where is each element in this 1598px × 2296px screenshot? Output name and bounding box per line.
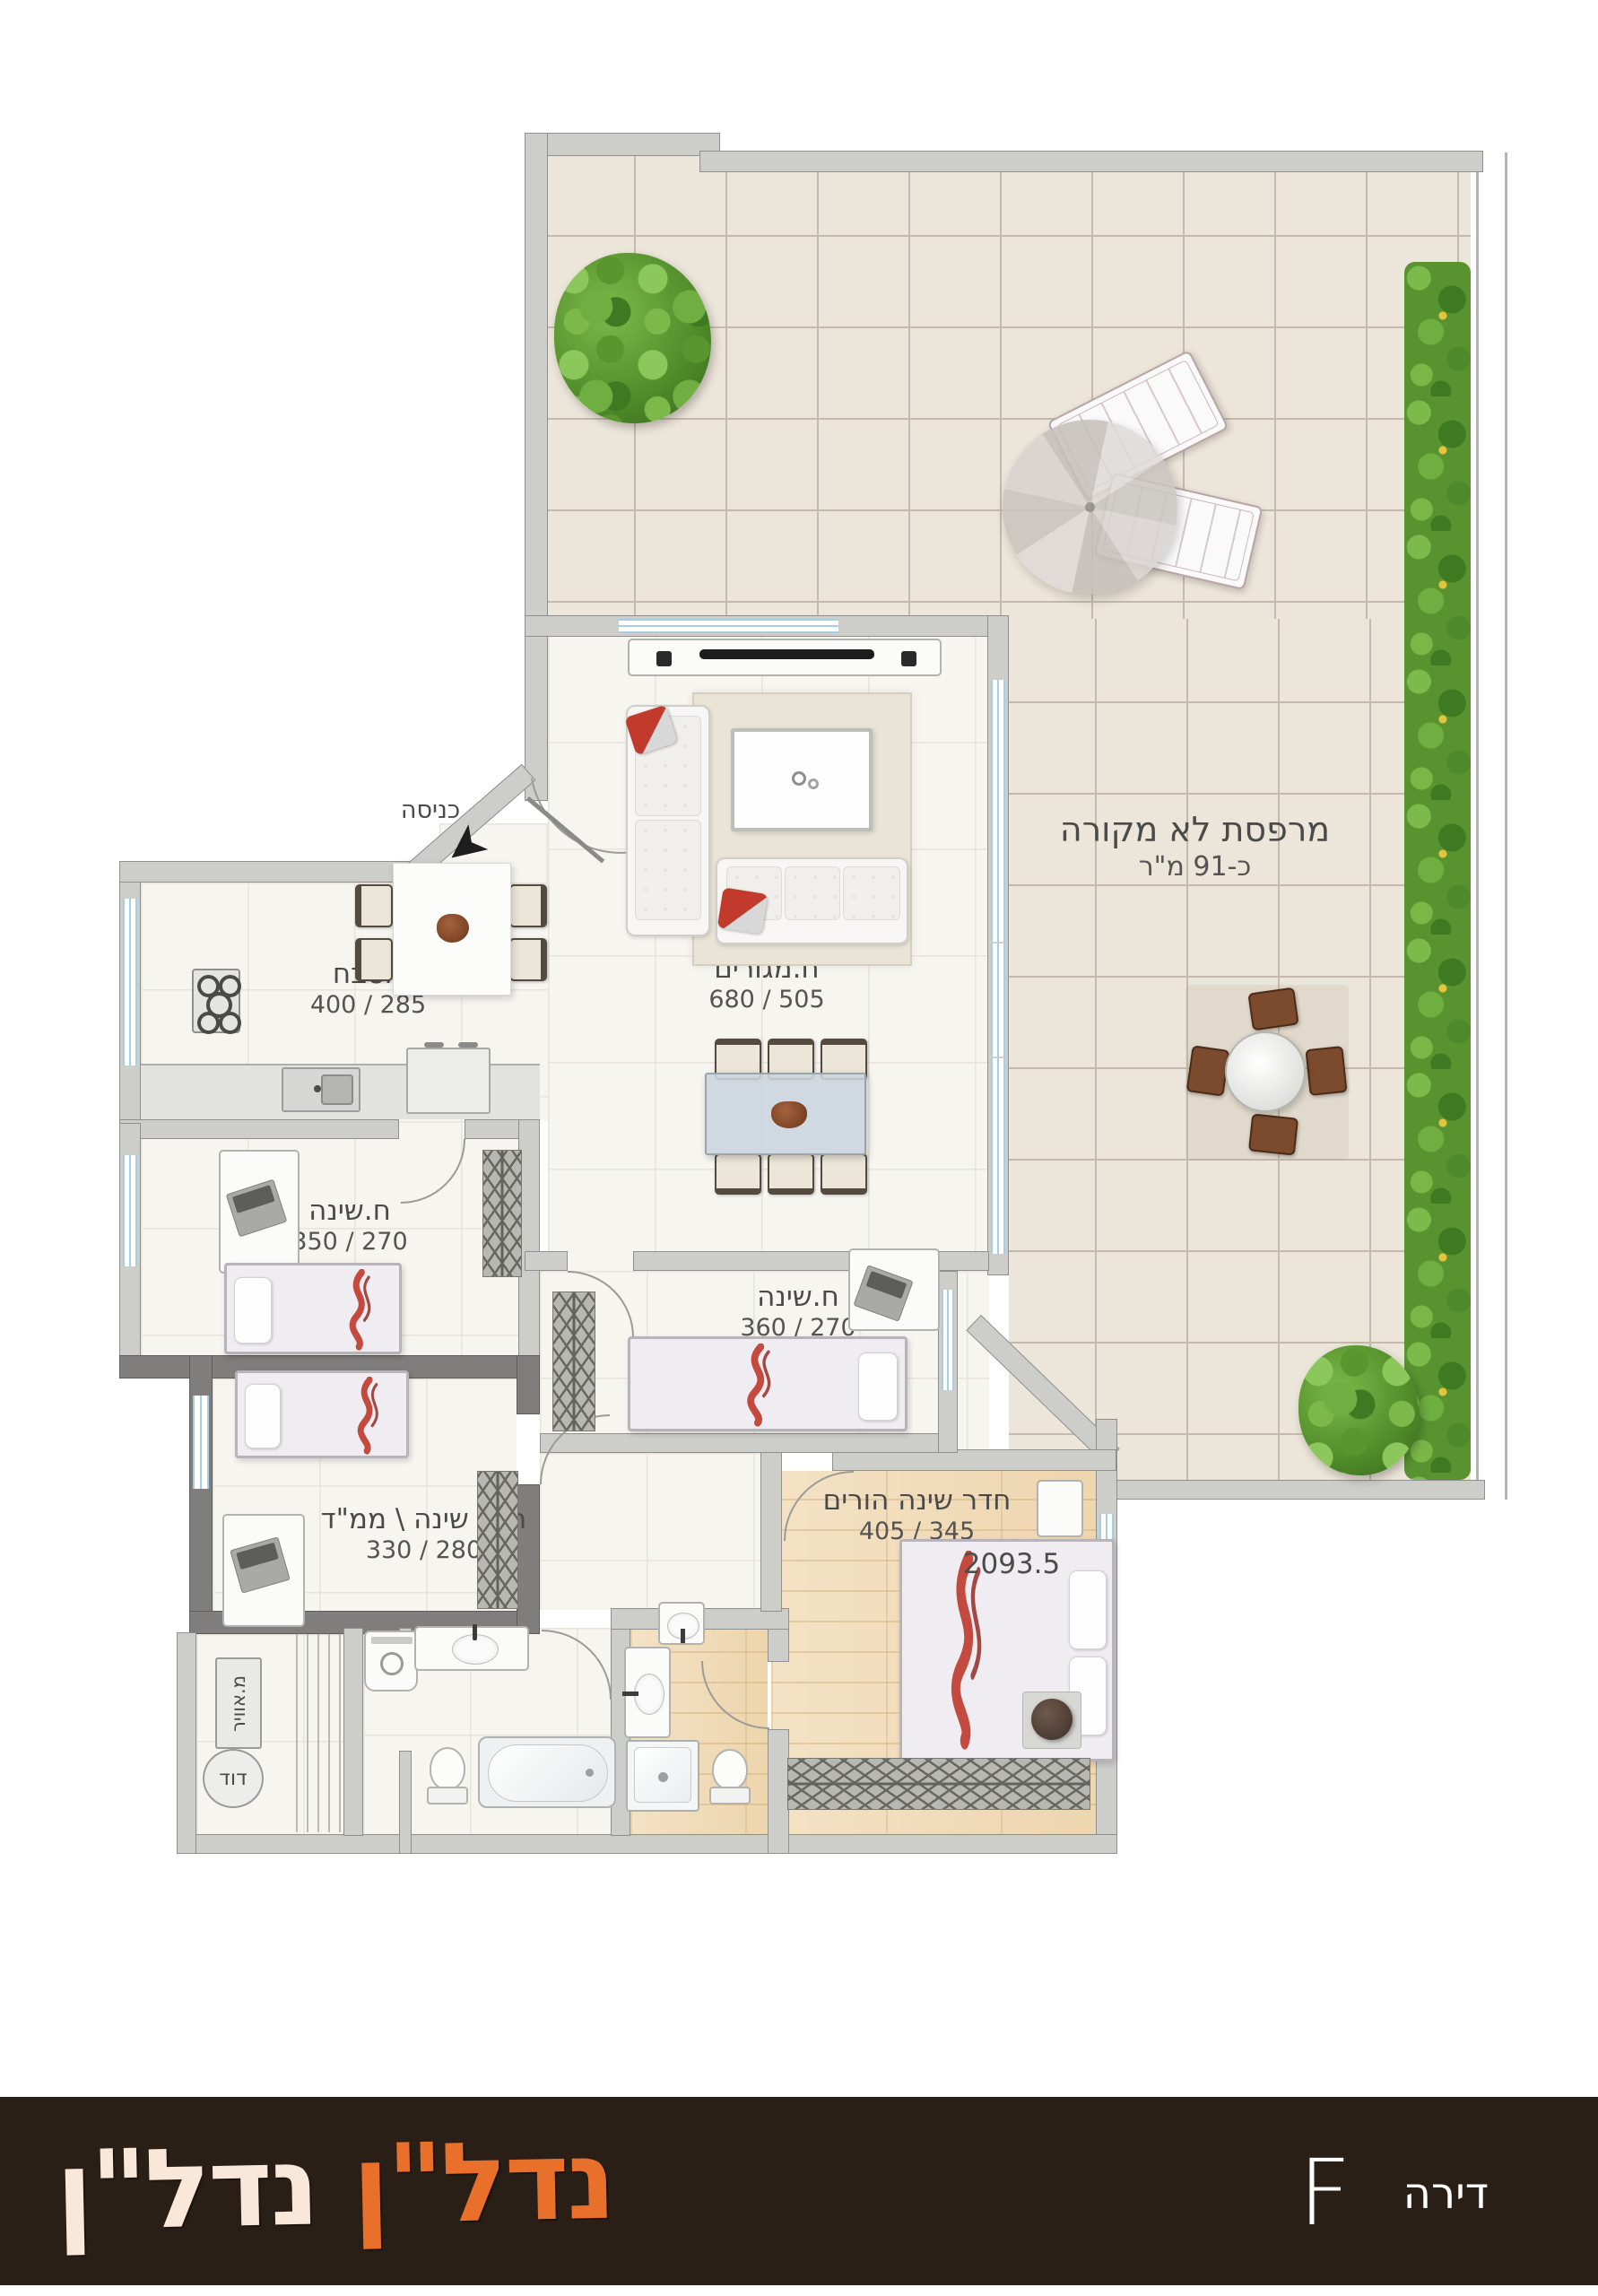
hedge-plants [1404,262,1471,1480]
faucet [622,1692,638,1696]
bowl [437,914,469,943]
terrace-name: מרפסת לא מקורה [1040,810,1350,851]
window-bedroom3-east [942,1290,954,1390]
wall-segment [525,133,548,801]
sofa-pillow [717,887,768,934]
wall-segment [119,1119,399,1139]
nightstand [1037,1480,1083,1537]
wardrobe [552,1291,595,1431]
plant [1298,1345,1420,1475]
ensuite-sink-small [658,1602,705,1645]
toilet [425,1747,470,1806]
toilet-bowl [712,1749,748,1790]
sink-basin [321,1074,353,1105]
boiler-circle: דוד [203,1749,264,1808]
shaft-hatch-lines [296,1634,346,1832]
brand-logo: נדל"ן נדל"ן [55,2117,615,2256]
master-name: חדר שינה הורים [816,1484,1018,1518]
dining-chair [715,1153,761,1195]
bed-number-tag: 2093.5 [949,1548,1074,1580]
tv-console [628,639,942,676]
air-shaft-box: מ.אוויר [215,1657,262,1749]
unit-label: דירה F [1298,2140,1489,2247]
wardrobe [482,1150,522,1277]
bowl [771,1101,807,1128]
laptop [853,1265,913,1322]
bath-sink-counter [414,1626,529,1671]
tv-screen [699,649,874,659]
island-handle [424,1042,444,1048]
table-decor [792,771,806,786]
bathtub [478,1736,616,1808]
faucet [473,1624,477,1640]
wardrobe-master [787,1758,1090,1810]
dining-chair [768,1153,814,1195]
desk [848,1248,940,1331]
table-decor [808,778,819,789]
dining-table [705,1073,866,1155]
railing-line [1476,152,1479,1500]
stove-cooktop [192,969,240,1033]
unit-letter: F [1298,2140,1351,2247]
mamad-wall-east [517,1355,540,1414]
kitchen-chair [355,884,393,927]
wall-segment [525,133,720,156]
wardrobe [477,1471,518,1609]
wall-segment [760,1449,782,1612]
terrace-chair [1247,987,1298,1031]
terrace-round-table [1225,1031,1306,1112]
kitchen-island [406,1048,491,1114]
window-bedroom1-west [123,1155,137,1266]
wall-segment [525,1251,568,1271]
laptop [226,1179,288,1238]
washer-panel [371,1637,413,1644]
kitchen-sink [282,1067,360,1112]
terrace-label: מרפסת לא מקורה כ-91 מ"ר [1040,810,1350,883]
washer-drum [380,1652,404,1675]
faucet [314,1085,321,1092]
kitchen-chair [509,938,547,981]
brand-word-second: נדל"ן [55,2122,318,2255]
bath-partition [399,1751,412,1854]
desk [219,1150,300,1274]
terrace-slider-door [991,944,1005,1057]
island-handle [458,1042,478,1048]
living-dims: 680 / 505 [686,986,847,1013]
window-living-east-2 [991,1058,1005,1254]
wall-segment [699,151,1483,172]
speaker [901,651,916,666]
sink-basin [634,1674,664,1715]
air-shaft-text: מ.אוויר [228,1675,249,1732]
bed-single [628,1336,908,1431]
tub-drain [586,1769,594,1777]
kitchen-chair [509,884,547,927]
kitchen-table [393,863,511,996]
toilet-tank [427,1787,468,1805]
wall-segment [768,1729,789,1854]
window-living-top [619,619,838,633]
bed-single [235,1370,409,1458]
bed-single [224,1263,402,1354]
terrace-chair [1305,1046,1347,1096]
toilet [707,1749,753,1806]
speaker [656,651,672,666]
boiler-text: דוד [219,1767,247,1790]
wall-segment [119,861,420,883]
stool [1031,1699,1073,1740]
terrace-chair [1248,1113,1298,1155]
coffee-table [731,728,873,831]
dining-chair [821,1153,867,1195]
unit-word: דירה [1403,2169,1489,2219]
ensuite-sink-counter [624,1647,671,1738]
desk [222,1514,305,1627]
plant [554,253,711,423]
wall-segment [768,1628,789,1662]
washing-machine [364,1631,418,1692]
master-label: חדר שינה הורים 405 / 345 [816,1484,1018,1545]
wall-segment [177,1632,196,1854]
shower [626,1740,699,1812]
railing-line-outer [1505,152,1507,1500]
laptop [230,1536,291,1593]
brand-word-first: נדל"ן [351,2117,614,2249]
toilet-tank [709,1787,751,1805]
kitchen-chair [355,938,393,981]
footer-bar: נדל"ן נדל"ן דירה F [0,2097,1598,2285]
window-kitchen-west [123,899,137,1065]
wall-segment [343,1628,363,1836]
faucet [681,1629,685,1643]
terrace-chair [1186,1045,1230,1096]
window-mamad-west [193,1396,209,1489]
umbrella-pole [1085,502,1095,512]
window-living-east-1 [991,680,1005,942]
shower-drain [658,1772,668,1782]
terrace-dims: כ-91 מ"ר [1040,851,1350,883]
floor-plan-page: מרפסת לא מקורה כ-91 מ"ר ח.מגורים 680 / 5… [0,0,1598,2296]
toilet-bowl [430,1747,465,1790]
wall-segment [1110,1480,1485,1500]
wall-segment [177,1834,1117,1854]
umbrella [1003,420,1177,595]
